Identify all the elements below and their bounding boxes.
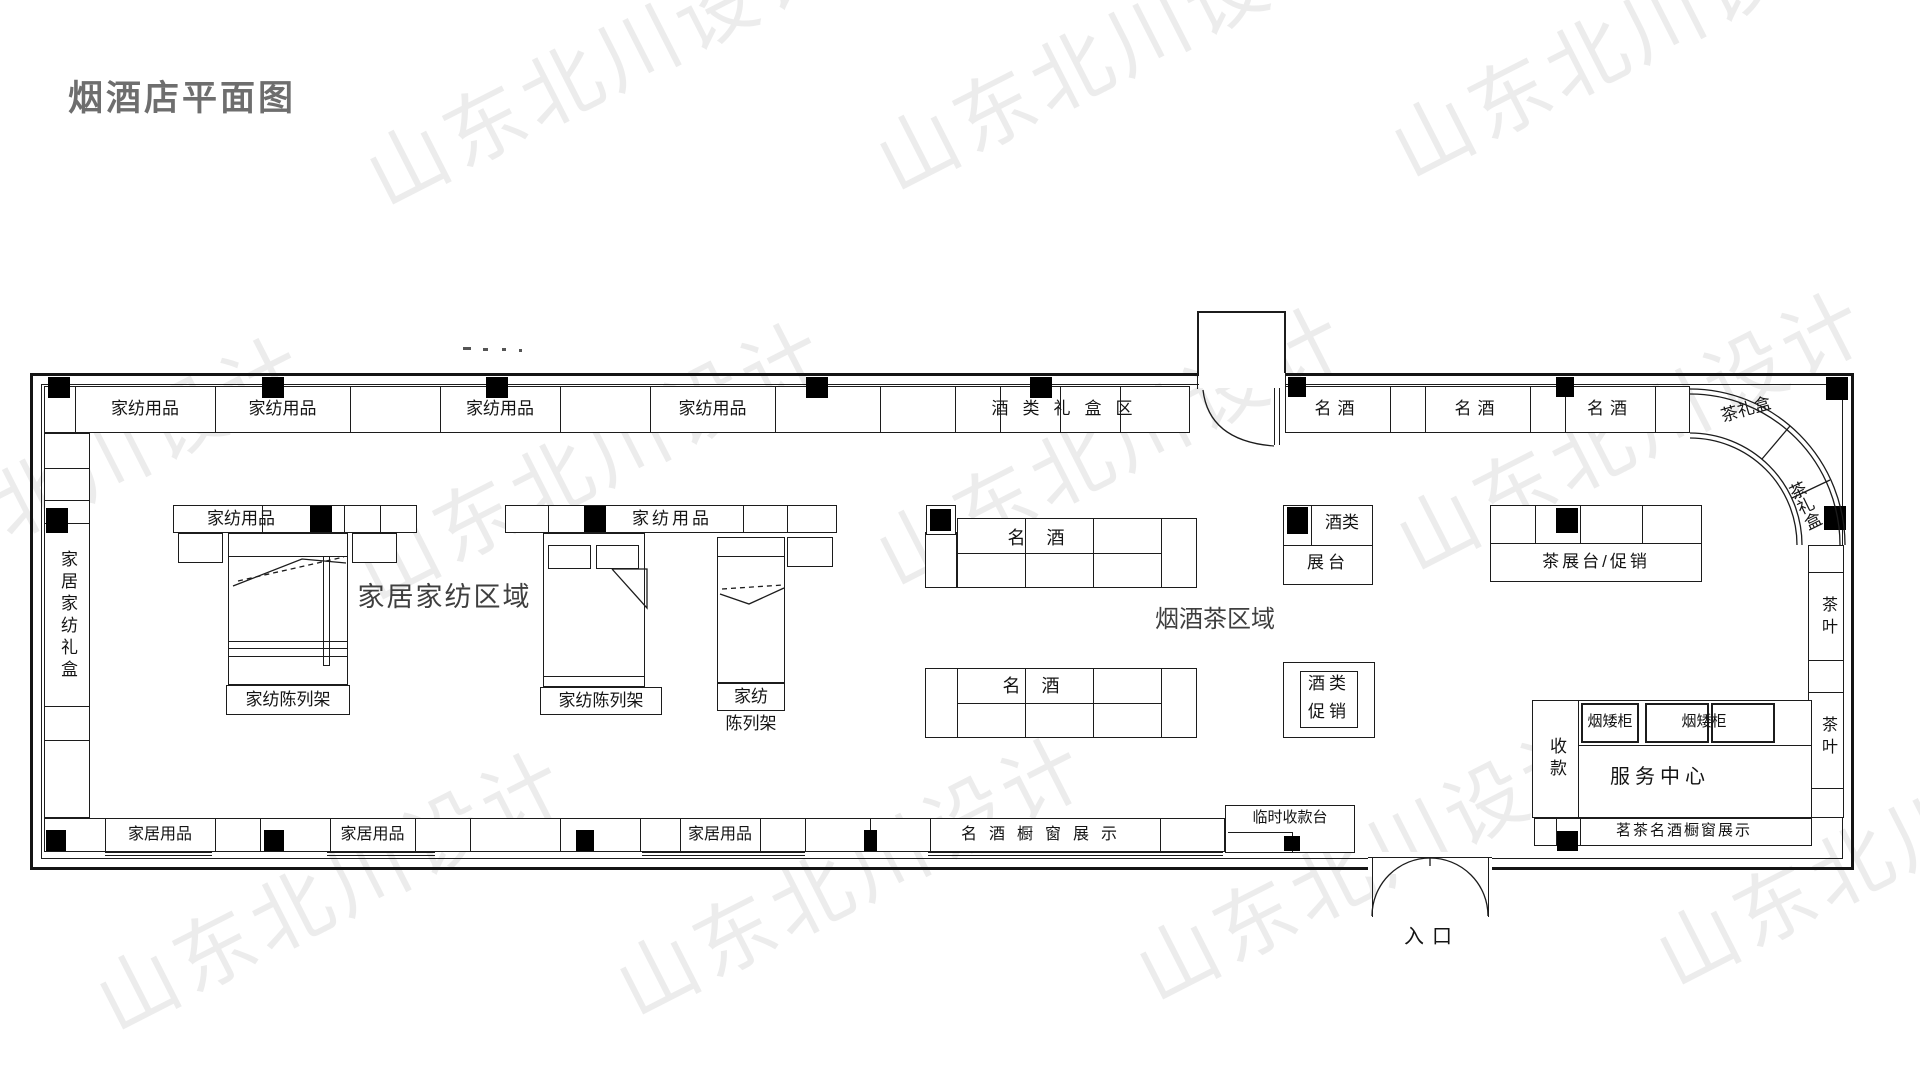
shelf-label-wine: 名酒 [1565, 399, 1655, 419]
bed-footline [228, 656, 348, 657]
shelf-label-textile: 家纺用品 [75, 399, 215, 419]
table-divider [1535, 505, 1536, 543]
block-divider [1578, 745, 1812, 746]
top-door-vestibule [1197, 311, 1286, 373]
shelf-divider [880, 386, 881, 433]
bed-label: 家纺陈列架 [540, 691, 662, 711]
shelf-divider [787, 505, 788, 533]
table-divider [957, 553, 1161, 554]
shelf-divider [344, 505, 345, 533]
dimension-marks [502, 348, 506, 351]
entrance-jamb [1372, 857, 1373, 917]
wine-stand-label: 酒类 [1311, 513, 1373, 533]
left-shelf-label-home-textile-giftbox: 家居家纺礼盒 [49, 527, 85, 705]
column [864, 830, 877, 851]
shelf-divider [1808, 692, 1844, 693]
column [1288, 377, 1306, 397]
wine-promo-label: 酒类 [1283, 674, 1375, 694]
strip-label-textile: 家纺用品 [176, 509, 306, 529]
column [930, 509, 951, 531]
shelf-divider [1160, 818, 1161, 852]
watermark-text: 山东北川设计 [344, 0, 856, 230]
bed-footline [228, 648, 348, 649]
shelf-label-household: 家居用品 [680, 826, 760, 844]
shelf-divider [350, 386, 351, 433]
dimension-marks [463, 347, 471, 350]
wine-table-label: 名 酒 [985, 676, 1085, 697]
shelf-divider [548, 505, 549, 533]
shelf-label-textile: 家纺用品 [650, 399, 775, 419]
window-sill [928, 852, 1223, 859]
entrance-threshold [1368, 857, 1492, 858]
shelf-label-household: 家居用品 [105, 826, 215, 844]
column [48, 377, 70, 398]
bed-pillow [596, 545, 639, 569]
top-door-jamb [1197, 369, 1198, 389]
block-divider [1228, 832, 1292, 833]
table-divider [1490, 543, 1702, 544]
tobacco-cabinet-label: 烟矮柜 [1581, 713, 1639, 730]
table-divider [1161, 518, 1162, 588]
shelf-divider [44, 706, 90, 707]
column [1826, 377, 1848, 400]
service-center-label: 服务中心 [1590, 766, 1730, 789]
window-sill [642, 852, 805, 859]
right-shelf-label-tea: 茶叶 [1813, 582, 1841, 654]
shelf-divider [44, 740, 90, 741]
page-title: 烟酒店平面图 [68, 70, 296, 121]
shelf-label-wine: 名酒 [1425, 399, 1530, 419]
column [46, 508, 68, 533]
column [310, 506, 332, 532]
shelf-divider [380, 505, 381, 533]
tea-stand-label: 茶展台/促销 [1490, 552, 1702, 572]
dimension-marks [483, 348, 488, 351]
column [1556, 377, 1574, 397]
table-divider [957, 703, 1161, 704]
column [576, 830, 594, 851]
bed-headline [717, 556, 785, 557]
top-door-leaf [1279, 388, 1280, 445]
watermark-text: 山东北川设计 [854, 0, 1366, 215]
shelf-divider [1580, 818, 1581, 846]
right-shelf-label-tea: 茶叶 [1813, 702, 1841, 774]
shelf-divider [1808, 660, 1844, 661]
bed-footline [543, 676, 645, 677]
shelf-label-wine: 名酒 [1285, 399, 1390, 419]
wine-promo-label: 促销 [1283, 702, 1375, 722]
top-door-leaf [1274, 388, 1275, 445]
table-divider [1283, 545, 1373, 546]
right-window-display-label: 茗茶名酒橱窗展示 [1584, 822, 1784, 839]
temp-cashier-label: 临时收款台 [1227, 809, 1353, 826]
shelf-label-household: 家居用品 [330, 826, 415, 844]
column [1557, 831, 1578, 851]
shelf-label-wine-window-display: 名酒橱窗展示 [930, 826, 1160, 844]
column [1287, 507, 1308, 534]
side-shelf-box [352, 533, 397, 563]
bed-display [717, 537, 785, 683]
table-divider [1580, 505, 1581, 543]
shelf-divider [805, 818, 806, 852]
column [46, 830, 66, 851]
zone-label-home-textile: 家居家纺区域 [352, 582, 537, 613]
side-shelf-box [787, 537, 833, 567]
tobacco-cabinet-label: 烟矮柜 [1666, 713, 1742, 730]
shelf-label-textile: 家纺用品 [440, 399, 560, 419]
wine-table [925, 532, 957, 588]
column [486, 377, 508, 398]
bed-side-rail [323, 556, 330, 666]
shelf-divider [215, 818, 216, 852]
shelf-divider [560, 386, 561, 433]
floorplan-page: 山东北川设计 山东北川设计 山东北川设计 山东北川设计 山东北川设计 山东北川设… [0, 0, 1920, 1080]
strip-label-textile: 家纺用品 [597, 509, 747, 529]
shelf-divider [1808, 788, 1844, 789]
table-divider [1161, 668, 1162, 738]
shelf-divider [1655, 386, 1656, 433]
shelf-divider [470, 818, 471, 852]
watermark-text: 山东北川设计 [1369, 0, 1881, 202]
shelf-divider [775, 386, 776, 433]
entrance-label: 入口 [1392, 926, 1472, 949]
column [262, 377, 284, 398]
column [1030, 377, 1052, 398]
shelf-label-textile: 家纺用品 [215, 399, 350, 419]
zone-label-tobacco-tea: 烟酒茶区域 [1150, 606, 1280, 634]
dimension-marks [519, 349, 522, 352]
bed-headline [228, 556, 348, 557]
shelf-divider [640, 818, 641, 852]
shelf-divider [1390, 386, 1391, 433]
side-shelf-box [178, 533, 223, 563]
bed-pillow [548, 545, 591, 569]
shelf-divider [44, 500, 90, 501]
shelf-divider [760, 818, 761, 852]
entrance-opening [1368, 852, 1492, 874]
column [806, 377, 828, 398]
shelf-divider [1530, 386, 1531, 433]
column [264, 830, 284, 851]
shelf-label-liquor-giftbox-zone: 酒类礼盒区 [948, 399, 1190, 419]
bed-label: 家纺陈列架 [226, 690, 350, 710]
shelf-divider [44, 468, 90, 469]
block-divider [1578, 700, 1579, 818]
shelf-divider [560, 818, 561, 852]
bed-label: 陈列架 [707, 714, 795, 734]
shelf-divider [260, 818, 261, 852]
cashier-label: 收款 [1542, 726, 1570, 792]
window-sill [105, 852, 212, 859]
bed-label: 家纺 [717, 687, 785, 707]
shelf-divider [415, 818, 416, 852]
column [1556, 508, 1578, 533]
column [1824, 506, 1846, 530]
column [1284, 836, 1300, 851]
window-sill [327, 852, 435, 859]
table-divider [1642, 505, 1643, 543]
entrance-jamb [1488, 857, 1489, 917]
shelf-divider [1808, 572, 1844, 573]
wine-stand-label: 展台 [1283, 553, 1373, 573]
bed-footline [228, 641, 348, 642]
wine-table-label: 名 酒 [990, 528, 1090, 549]
